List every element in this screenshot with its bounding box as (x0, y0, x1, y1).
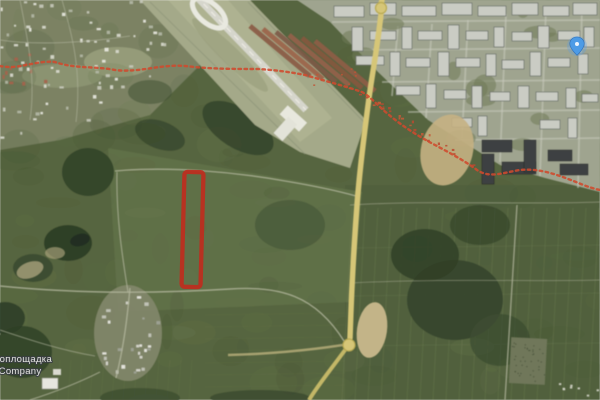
village-cluster (94, 285, 162, 381)
watermark-line-2: s&Company (0, 366, 41, 377)
roundabout-north (376, 3, 387, 14)
cemetery-patch (509, 337, 547, 385)
village-ground (94, 285, 162, 381)
barn-building (53, 369, 61, 375)
sand-patch (45, 247, 65, 259)
satellite-imagery: втоплощадка s&Company (0, 0, 600, 400)
satellite-map[interactable]: втоплощадка s&Company (0, 0, 600, 400)
roundabout-south (343, 339, 355, 351)
location-pin-icon[interactable] (567, 36, 587, 56)
barn-building (42, 378, 58, 389)
watermark-line-1: втоплощадка (0, 354, 52, 365)
